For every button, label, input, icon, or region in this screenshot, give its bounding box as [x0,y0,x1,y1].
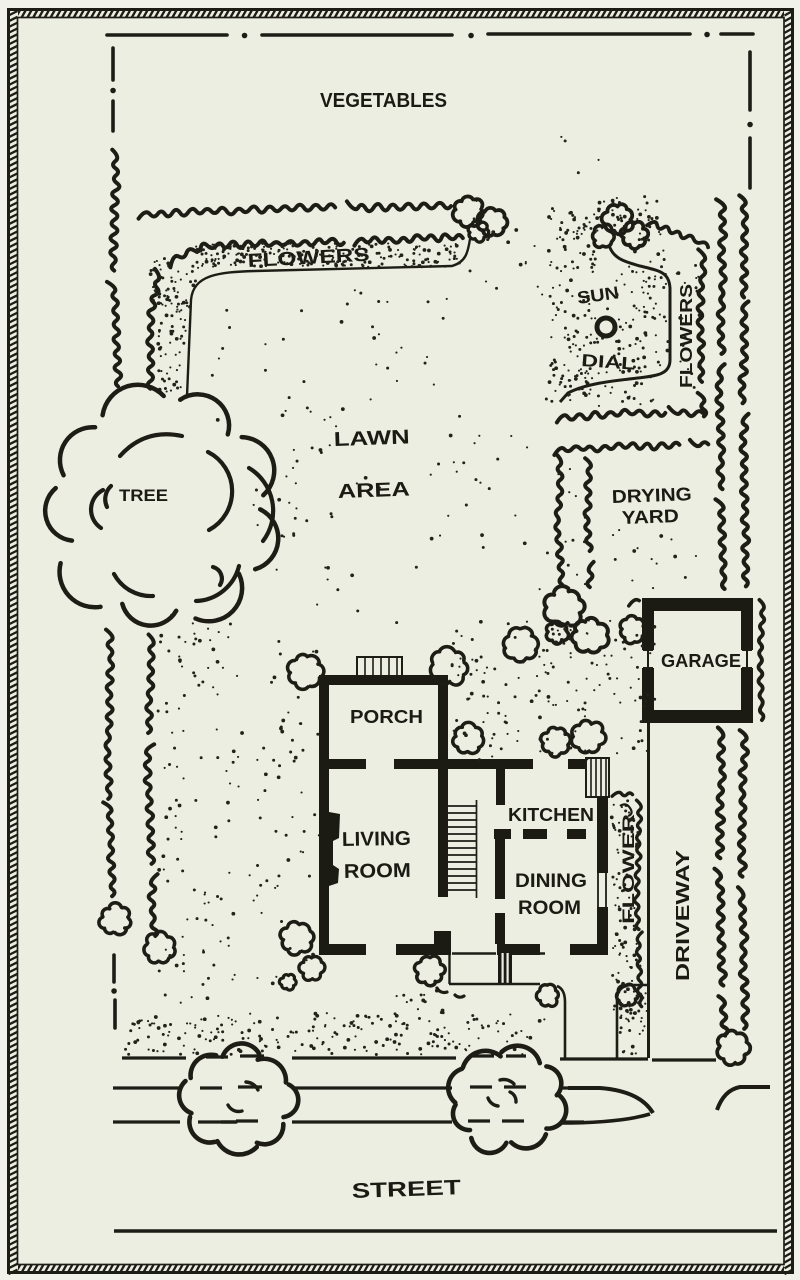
svg-text:VEGETABLES: VEGETABLES [320,90,447,112]
svg-text:GARAGE: GARAGE [661,651,741,671]
svg-text:STREET: STREET [351,1176,461,1203]
svg-text:KITCHEN: KITCHEN [508,804,594,825]
svg-text:YARD: YARD [621,505,679,528]
svg-text:PORCH: PORCH [350,706,423,727]
svg-text:FLOWERS: FLOWERS [676,284,696,388]
svg-text:DINING: DINING [515,871,587,892]
svg-text:ROOM: ROOM [344,860,411,883]
svg-text:ROOM: ROOM [518,898,581,919]
svg-text:AREA: AREA [337,478,410,502]
svg-text:LAWN: LAWN [333,426,410,451]
svg-text:LIVING: LIVING [342,828,411,851]
svg-text:FLOWER: FLOWER [620,814,638,924]
svg-text:TREE: TREE [119,487,168,505]
svg-text:DRYING: DRYING [611,483,692,507]
svg-text:DRIVEWAY: DRIVEWAY [672,849,693,981]
